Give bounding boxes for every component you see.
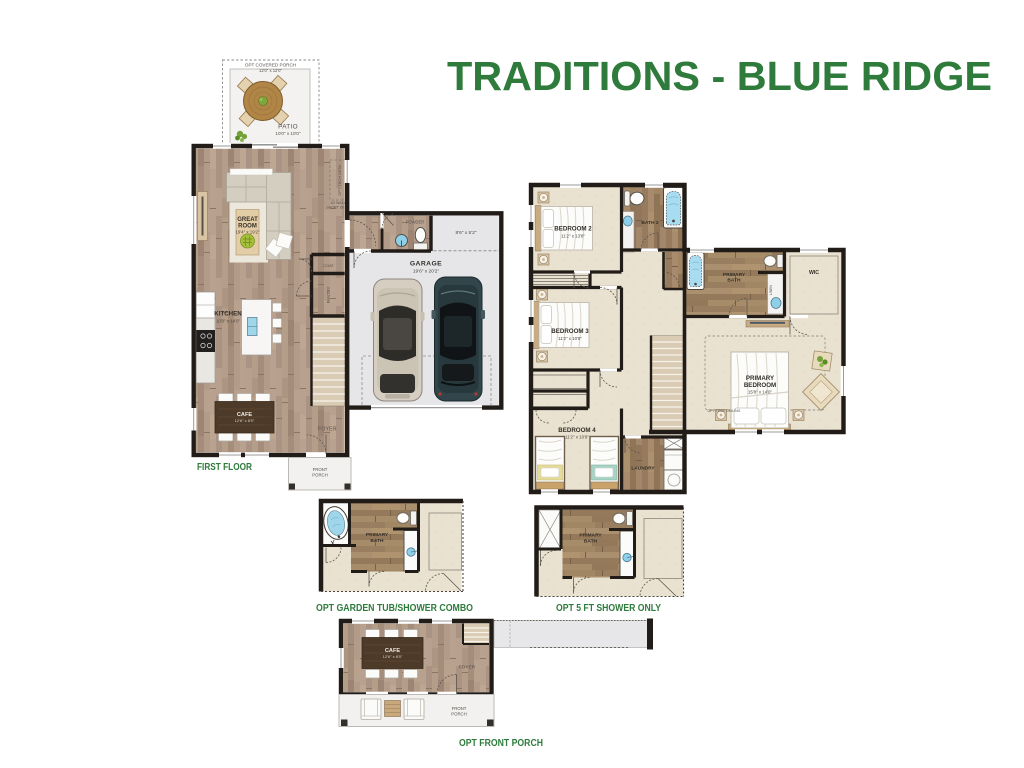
svg-text:GREAT: GREAT [237, 217, 258, 223]
svg-text:8'6" x 5'2": 8'6" x 5'2" [456, 230, 477, 236]
svg-text:OPT COVERED PORCH: OPT COVERED PORCH [245, 63, 296, 68]
svg-text:PRIMARY: PRIMARY [746, 375, 775, 382]
svg-text:OPT 5 FT SHOWER ONLY: OPT 5 FT SHOWER ONLY [556, 602, 661, 614]
svg-text:FRONT: FRONT [313, 467, 328, 472]
svg-text:19'4" x 19'2": 19'4" x 19'2" [235, 230, 260, 235]
svg-text:BEDROOM 2: BEDROOM 2 [554, 226, 592, 233]
svg-text:12'6" x 8'0": 12'6" x 8'0" [383, 654, 403, 659]
svg-text:BATH 2: BATH 2 [641, 220, 659, 226]
svg-text:WIC: WIC [809, 270, 819, 276]
svg-text:FIRST FLOOR: FIRST FLOOR [197, 461, 252, 473]
svg-text:11'2" x 10'8": 11'2" x 10'8" [565, 435, 589, 440]
svg-text:PANTRY: PANTRY [326, 286, 331, 303]
svg-text:BATH: BATH [584, 538, 598, 544]
svg-text:1/2 WALL: 1/2 WALL [330, 201, 346, 205]
svg-text:PORCH: PORCH [451, 712, 467, 717]
svg-text:OPT GARDEN TUB/SHOWER COMBO: OPT GARDEN TUB/SHOWER COMBO [316, 602, 473, 614]
svg-text:10'0" x 10'0": 10'0" x 10'0" [275, 131, 301, 136]
svg-text:BEDROOM 3: BEDROOM 3 [551, 328, 589, 335]
svg-text:LAUNDRY: LAUNDRY [631, 466, 655, 472]
svg-text:PORCH: PORCH [312, 473, 328, 478]
svg-text:10'0" x 14'0": 10'0" x 14'0" [216, 319, 241, 324]
svg-text:11'2" x 10'8": 11'2" x 10'8" [558, 336, 582, 341]
svg-text:FRONT: FRONT [452, 706, 467, 711]
svg-text:OPT FRONT PORCH: OPT FRONT PORCH [459, 737, 543, 749]
svg-text:11'2" x 13'8": 11'2" x 13'8" [561, 234, 585, 239]
svg-text:TRADITIONS - BLUE RIDGE: TRADITIONS - BLUE RIDGE [447, 53, 992, 99]
svg-text:GARAGE: GARAGE [410, 261, 442, 268]
svg-text:LINEN: LINEN [769, 284, 773, 295]
svg-text:19'6" x 20'2": 19'6" x 20'2" [413, 269, 440, 275]
svg-text:12'6" x 8'0": 12'6" x 8'0" [235, 418, 255, 423]
svg-text:BEDROOM: BEDROOM [744, 382, 776, 389]
svg-text:BATH: BATH [370, 538, 384, 544]
svg-text:BATH: BATH [727, 278, 741, 284]
svg-text:FOYER: FOYER [459, 665, 476, 671]
svg-text:KITCHEN: KITCHEN [214, 311, 242, 318]
svg-text:COAT: COAT [323, 263, 334, 268]
svg-text:12'0" x 12'0": 12'0" x 12'0" [259, 68, 282, 73]
svg-text:POWDER: POWDER [406, 220, 424, 225]
svg-text:PRIMARY: PRIMARY [366, 532, 389, 538]
svg-text:15'8" x 14'0": 15'8" x 14'0" [748, 390, 773, 395]
svg-text:PRIMARY: PRIMARY [579, 533, 602, 539]
svg-text:BEDROOM 4: BEDROOM 4 [558, 427, 596, 434]
svg-text:OPT TECH DESK: OPT TECH DESK [337, 164, 342, 196]
svg-text:FOYER: FOYER [318, 427, 337, 433]
svg-text:PATIO: PATIO [278, 124, 298, 131]
svg-text:PRIMARY: PRIMARY [723, 272, 746, 278]
svg-text:OPT TRAY CEILING: OPT TRAY CEILING [708, 409, 741, 413]
